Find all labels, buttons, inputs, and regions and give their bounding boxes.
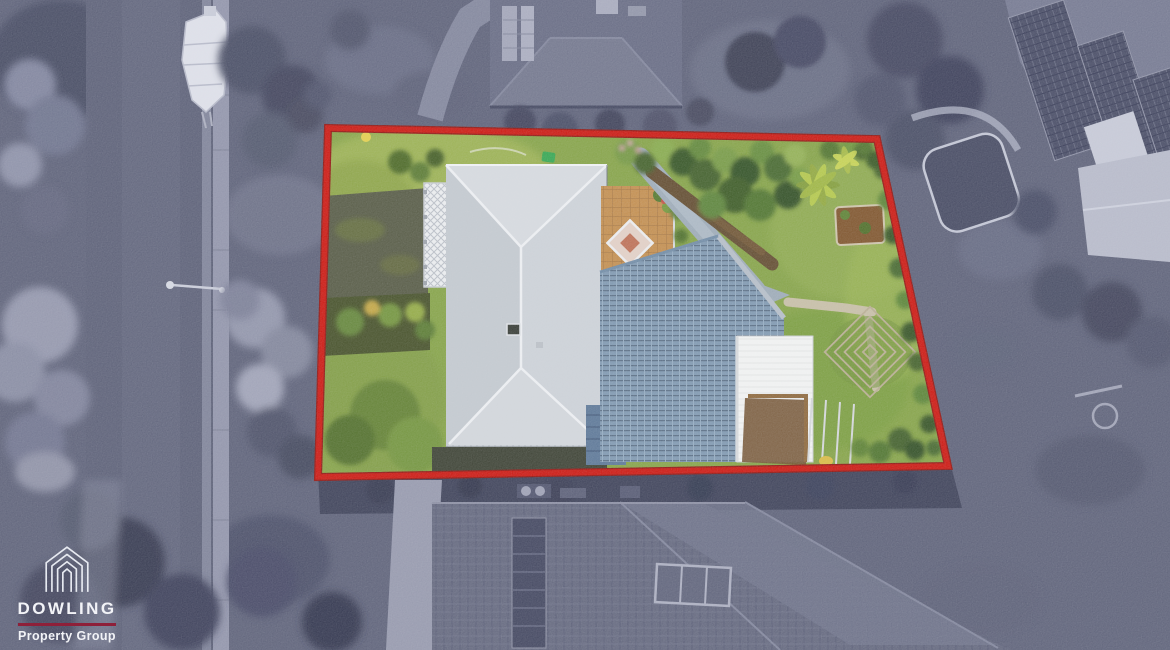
aerial-property-photo: DOWLING Property Group — [0, 0, 1170, 650]
agency-logo: DOWLING Property Group — [16, 542, 118, 643]
photo-grain — [0, 0, 1170, 650]
agency-tagline: Property Group — [16, 629, 118, 643]
aerial-scene — [0, 0, 1170, 650]
agency-name: DOWLING — [16, 599, 118, 619]
logo-divider — [18, 623, 116, 626]
nested-house-outline-icon — [41, 542, 93, 596]
